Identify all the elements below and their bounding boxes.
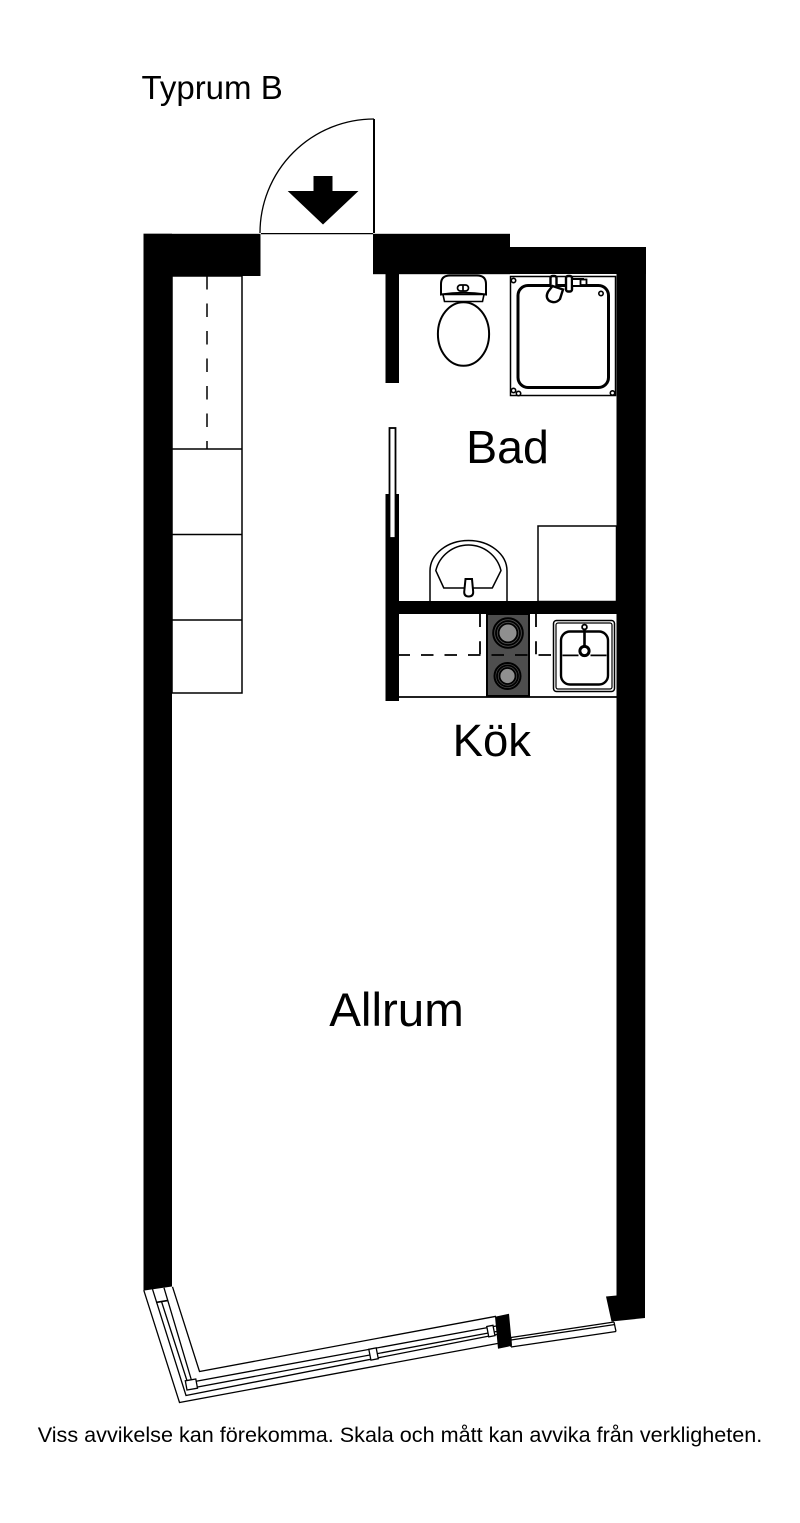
- svg-text:Viss avvikelse kan förekomma.: Viss avvikelse kan förekomma. Skala och …: [38, 1422, 763, 1447]
- svg-text:Allrum: Allrum: [329, 984, 464, 1037]
- svg-text:Bad: Bad: [466, 421, 549, 473]
- svg-text:Typrum B: Typrum B: [142, 69, 283, 106]
- svg-text:Kök: Kök: [453, 715, 532, 766]
